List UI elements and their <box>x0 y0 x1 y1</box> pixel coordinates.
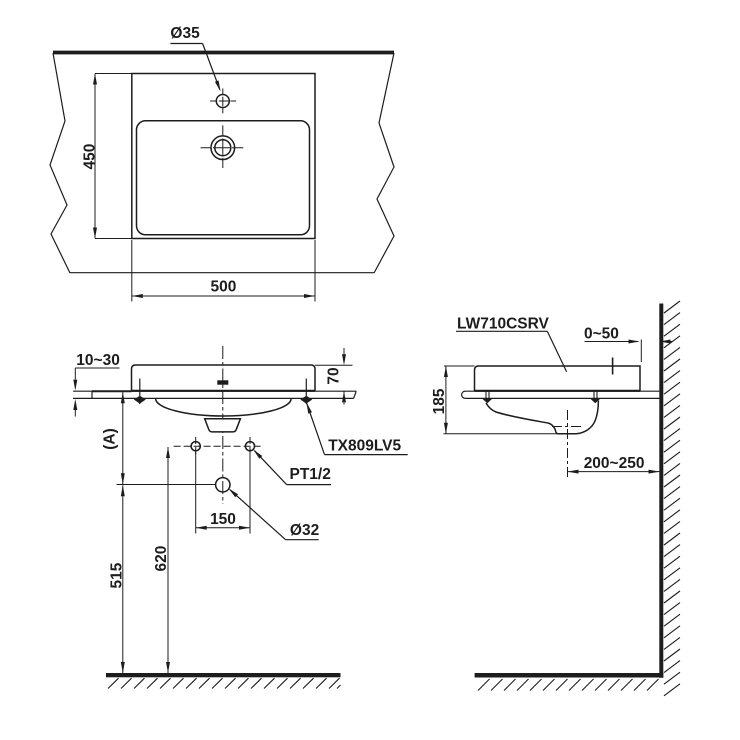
svg-text:10~30: 10~30 <box>76 352 120 369</box>
svg-text:450: 450 <box>82 144 99 170</box>
svg-text:620: 620 <box>153 546 170 572</box>
svg-text:(A): (A) <box>102 428 119 450</box>
svg-text:70: 70 <box>326 367 343 384</box>
svg-text:200~250: 200~250 <box>584 455 645 472</box>
svg-text:515: 515 <box>109 562 126 588</box>
svg-text:Ø35: Ø35 <box>170 25 200 42</box>
svg-text:185: 185 <box>431 388 448 414</box>
svg-text:Ø32: Ø32 <box>290 522 319 539</box>
svg-text:PT1/2: PT1/2 <box>290 466 331 483</box>
svg-text:150: 150 <box>210 511 236 528</box>
svg-text:500: 500 <box>210 279 236 296</box>
svg-text:LW710CSRV: LW710CSRV <box>457 316 550 333</box>
svg-text:TX809LV5: TX809LV5 <box>328 438 401 455</box>
svg-text:0~50: 0~50 <box>584 326 619 343</box>
